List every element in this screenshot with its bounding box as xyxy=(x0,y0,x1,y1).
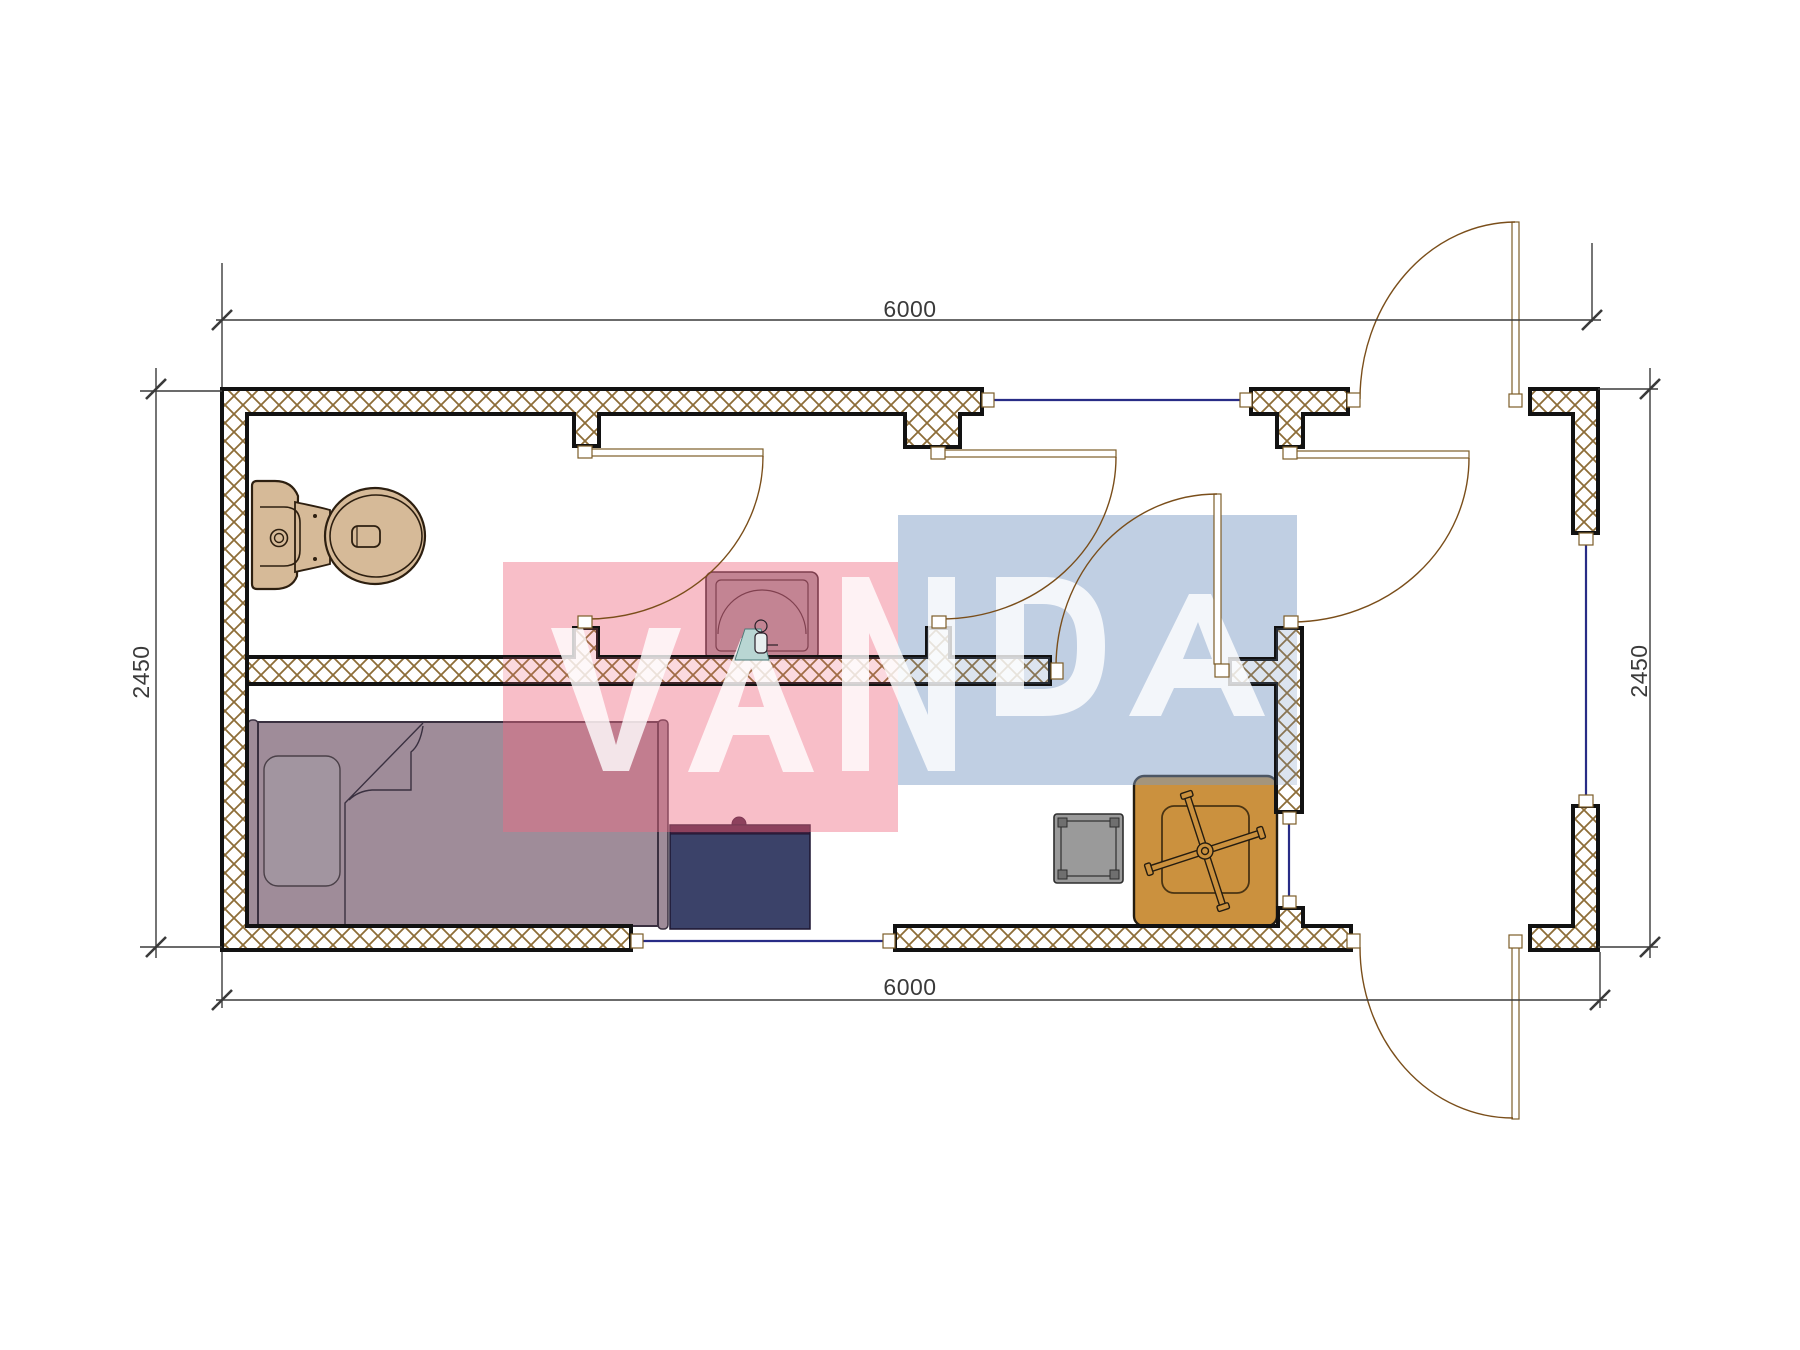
svg-text:2450: 2450 xyxy=(128,645,154,698)
svg-text:2450: 2450 xyxy=(1626,644,1652,697)
svg-text:6000: 6000 xyxy=(883,296,936,322)
svg-text:6000: 6000 xyxy=(883,974,936,1000)
